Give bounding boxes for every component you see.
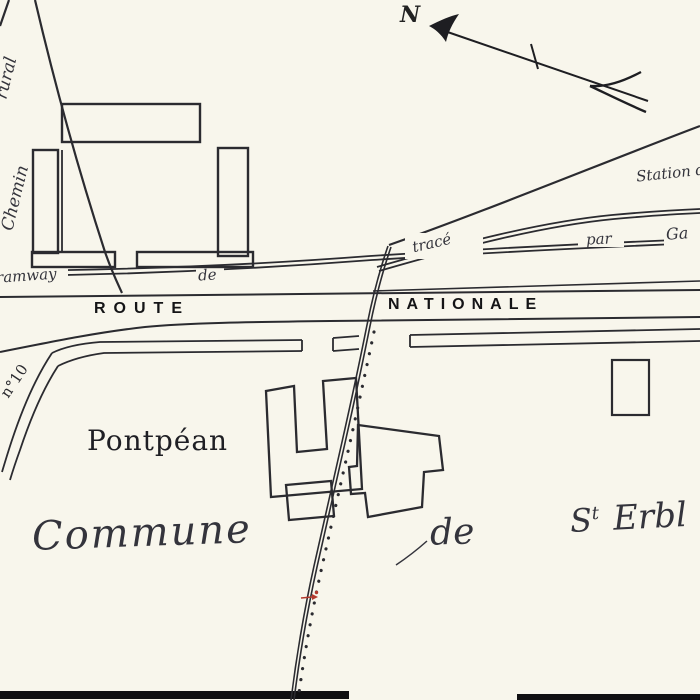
nationale-label: NATIONALE	[388, 296, 543, 314]
stream-path	[291, 246, 391, 700]
commune-label: Commune	[31, 506, 252, 560]
map-linework	[0, 0, 700, 700]
north-arrow	[429, 14, 648, 112]
farm-buildings	[32, 104, 253, 267]
north-label: N	[400, 2, 420, 28]
saint-name: Erbl	[612, 495, 688, 539]
saint-initial: S	[569, 501, 593, 540]
village-label: Pontpéan	[87, 424, 228, 457]
chemin-rural-road	[0, 0, 122, 293]
arrowhead-icon	[429, 14, 459, 42]
map-border-bar-right	[517, 694, 700, 700]
route-label: ROUTE	[94, 300, 190, 318]
survey-map: rural Chemin N Station d Tramway de trac…	[0, 0, 700, 700]
dotted-boundary	[298, 332, 374, 700]
saint-erblon-label: StErbl	[569, 495, 688, 541]
de-flourish	[396, 541, 427, 565]
gare-label: Ga	[665, 223, 689, 244]
commune-de-label: de	[429, 511, 475, 554]
map-border-bar-left	[0, 691, 349, 699]
saint-superscript: t	[591, 503, 599, 524]
tramway-de-label: de	[197, 265, 217, 284]
par-label: par	[586, 229, 613, 248]
